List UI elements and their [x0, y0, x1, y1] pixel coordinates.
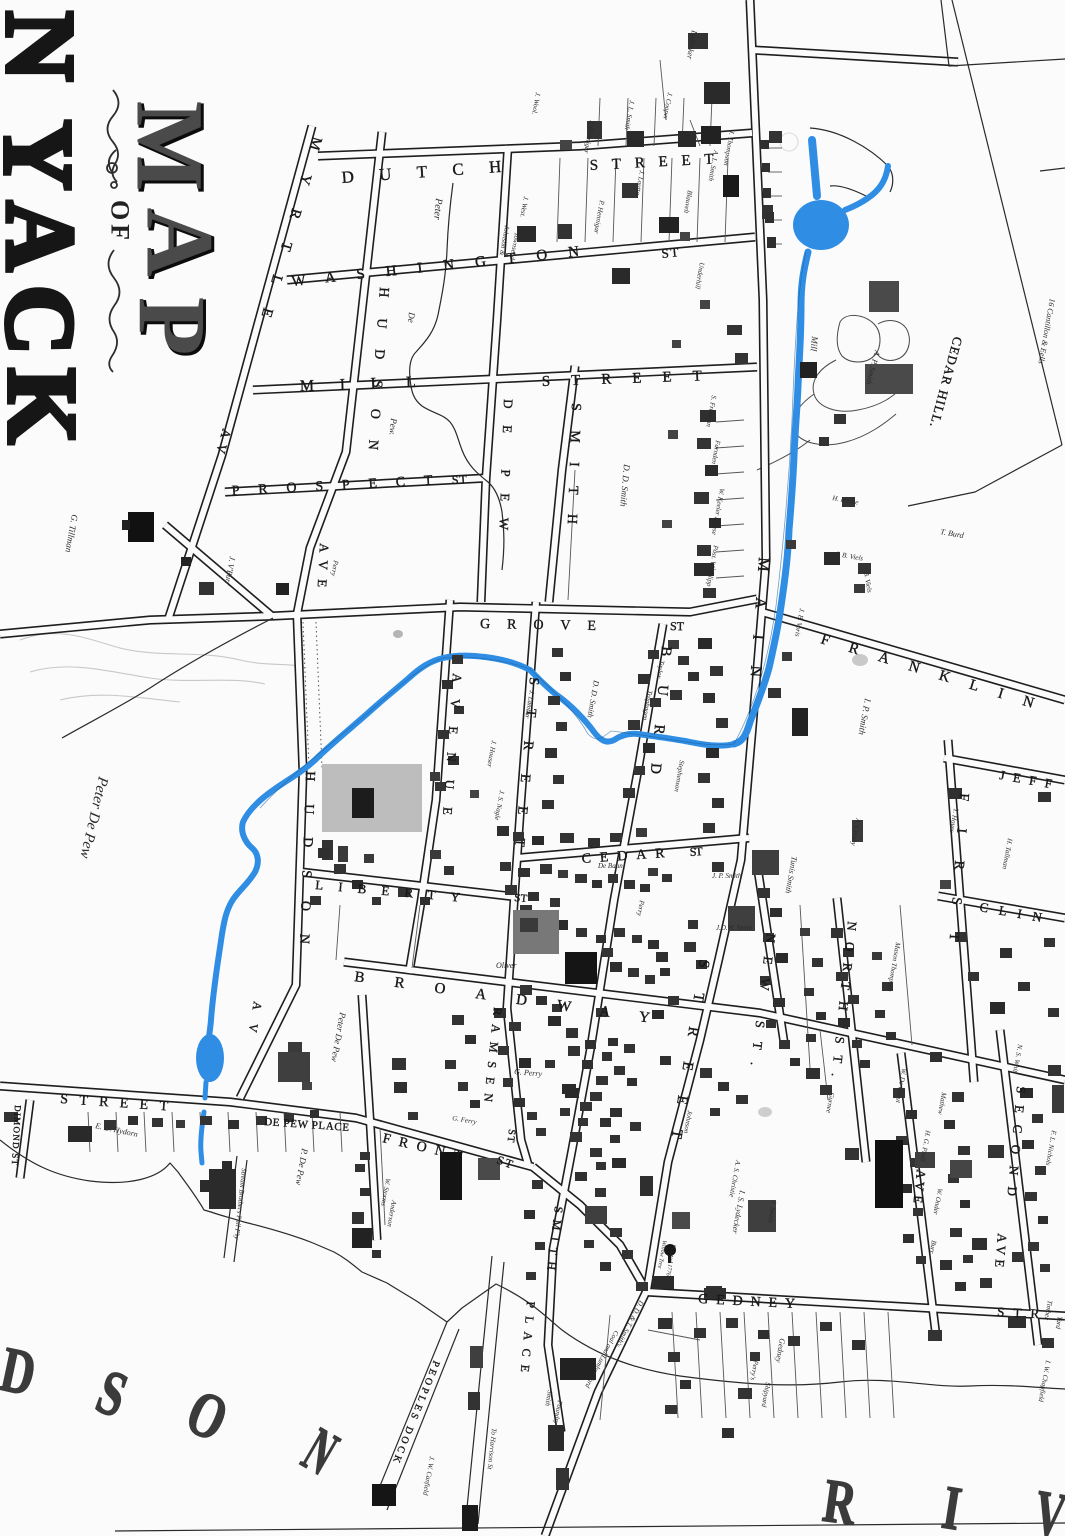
svg-text:A: A: [127, 207, 234, 276]
svg-text:De Baun.: De Baun.: [597, 862, 625, 870]
svg-text:Y: Y: [0, 120, 92, 190]
svg-text:M: M: [117, 101, 224, 192]
svg-text:ST: ST: [661, 244, 684, 261]
svg-text:ST: ST: [689, 844, 706, 859]
svg-text:K: K: [0, 368, 96, 443]
svg-text:AVE: AVE: [314, 543, 332, 598]
svg-text:A: A: [0, 201, 94, 271]
svg-text:J. P. Smith: J. P. Smith: [712, 872, 742, 880]
svg-text:Oliver: Oliver: [496, 961, 517, 970]
svg-text:P: P: [119, 297, 226, 356]
svg-text:ST: ST: [670, 619, 687, 633]
svg-text:C: C: [0, 285, 94, 355]
svg-text:Mill: Mill: [809, 335, 820, 352]
svg-text:OF: OF: [106, 200, 135, 244]
svg-text:Peter: Peter: [431, 197, 444, 221]
svg-text:N: N: [0, 11, 94, 81]
svg-text:ST: ST: [451, 472, 470, 487]
svg-text:ST: ST: [504, 1129, 517, 1147]
svg-text:GROVE: GROVE: [480, 617, 613, 634]
svg-text:De: De: [406, 311, 417, 323]
svg-text:ST: ST: [514, 892, 531, 905]
svg-text:J.D.W. Smith: J.D.W. Smith: [716, 924, 753, 932]
svg-text:Pew.: Pew.: [388, 417, 400, 436]
